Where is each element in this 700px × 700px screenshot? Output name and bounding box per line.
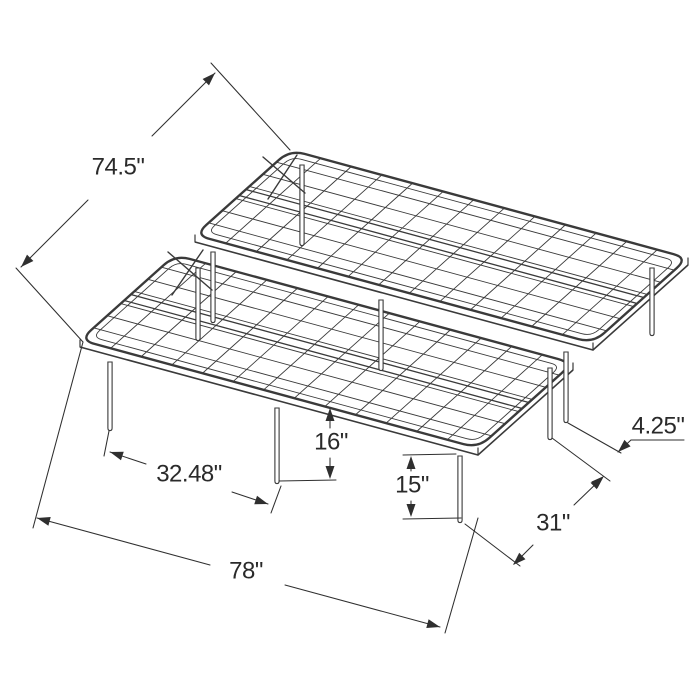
dim-line-overall-depth: [152, 73, 215, 136]
rear-half-cross-wire: [440, 216, 535, 301]
front-half-cross-wire: [294, 313, 389, 398]
dim-arrow-overall-width: [426, 619, 441, 631]
front-half-cross-wire: [325, 321, 420, 406]
front-mid-leg: [275, 408, 279, 484]
front-half-cross-wire: [417, 346, 512, 431]
rear-right-corner-leg: [650, 268, 654, 336]
rear-half-cross-wire: [532, 241, 627, 326]
front-half-cross-wire: [111, 263, 206, 348]
rear-half-front-right-leg: [564, 352, 568, 423]
dim-ext-line-side-leg-spacing: [552, 438, 610, 481]
dimension-label-side-leg-spacing: 31": [536, 509, 570, 536]
dim-ext-line-side-leg-spacing: [465, 524, 520, 566]
rear-half-front-mid-leg: [379, 300, 383, 371]
dim-ext-line-front-leg-spacing: [104, 431, 109, 456]
dim-ext-line-leg-height: [403, 518, 461, 519]
front-half-cross-wire: [447, 355, 542, 440]
front-half-rear-right-leg: [548, 368, 552, 440]
rear-left-corner-leg: [300, 165, 304, 246]
front-half-cross-wire: [233, 297, 328, 382]
rear-half-cross-wire: [562, 250, 657, 335]
diagram-page: 74.5"78"32.48"16"15"31"4.25": [0, 0, 700, 700]
rear-half-rail-outer: [201, 153, 681, 340]
dimension-label-frame-gap: 4.25": [632, 412, 685, 439]
rear-half-cross-wire: [348, 192, 443, 277]
rear-half-cross-wire: [317, 183, 412, 268]
dim-line-overall-width: [285, 585, 440, 627]
front-half-cross-wire: [356, 330, 451, 415]
rear-half-cross-wire: [379, 200, 474, 285]
dim-ext-line-leg-height: [403, 454, 456, 455]
dim-ext-line-overall-depth: [211, 63, 290, 150]
dim-arrow-front-leg-spacing: [254, 496, 269, 509]
front-half-cross-wire: [172, 280, 267, 365]
dim-ext-line-overall-width: [33, 342, 83, 528]
dimension-label-leg-height: 15": [395, 471, 429, 498]
dim-arrow-frame-height: [326, 466, 335, 479]
front-half-cross-wire: [141, 272, 236, 357]
dim-ext-line-overall-width: [445, 518, 478, 633]
front-half-rail-outer: [86, 258, 566, 445]
dimension-label-overall-depth: 74.5": [92, 153, 145, 180]
front-left-corner-leg: [108, 362, 112, 431]
front-half-cross-wire: [386, 338, 481, 423]
bed-frame-diagram-svg: 74.5"78"32.48"16"15"31"4.25": [0, 0, 700, 700]
rear-half-cross-wire: [471, 225, 566, 310]
dim-arrow-front-leg-spacing: [109, 448, 124, 461]
dimension-label-frame-height: 16": [314, 428, 348, 455]
dim-arrow-overall-width: [36, 514, 51, 526]
front-half-cross-wire: [202, 288, 297, 373]
rear-half-cross-wire: [226, 158, 321, 243]
dim-arrow-leg-height: [407, 456, 416, 469]
dim-arrow-leg-height: [407, 504, 416, 517]
dimension-label-overall-width: 78": [229, 557, 263, 584]
dim-ext-line-frame-height: [279, 480, 336, 481]
front-half-cross-wire: [264, 305, 359, 390]
rear-half-front-left-leg: [211, 252, 215, 323]
dimension-label-front-leg-spacing: 32.48": [156, 460, 222, 487]
dim-ext-line-frame-gap: [568, 423, 621, 453]
rear-half-cross-wire: [501, 233, 596, 318]
rear-half-cross-wire: [409, 208, 504, 293]
dim-ext-line-front-leg-spacing: [271, 486, 281, 513]
dim-ext-line-overall-depth: [16, 268, 83, 342]
dim-line-overall-width: [37, 518, 210, 565]
front-right-corner-leg: [458, 456, 462, 523]
dim-line-overall-depth: [21, 200, 88, 267]
